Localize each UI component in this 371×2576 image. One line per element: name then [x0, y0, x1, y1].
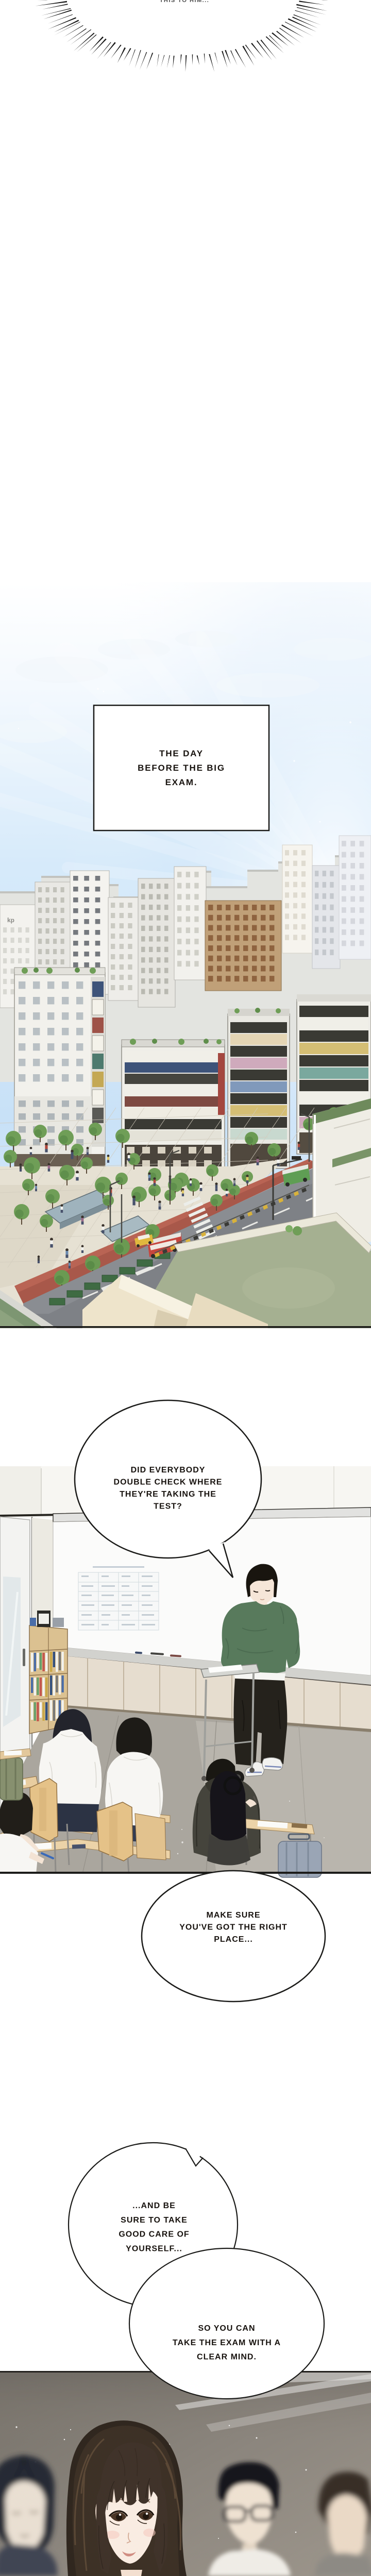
- svg-text:THIS TO HIM...: THIS TO HIM...: [160, 0, 210, 4]
- svg-text:kp: kp: [7, 917, 14, 924]
